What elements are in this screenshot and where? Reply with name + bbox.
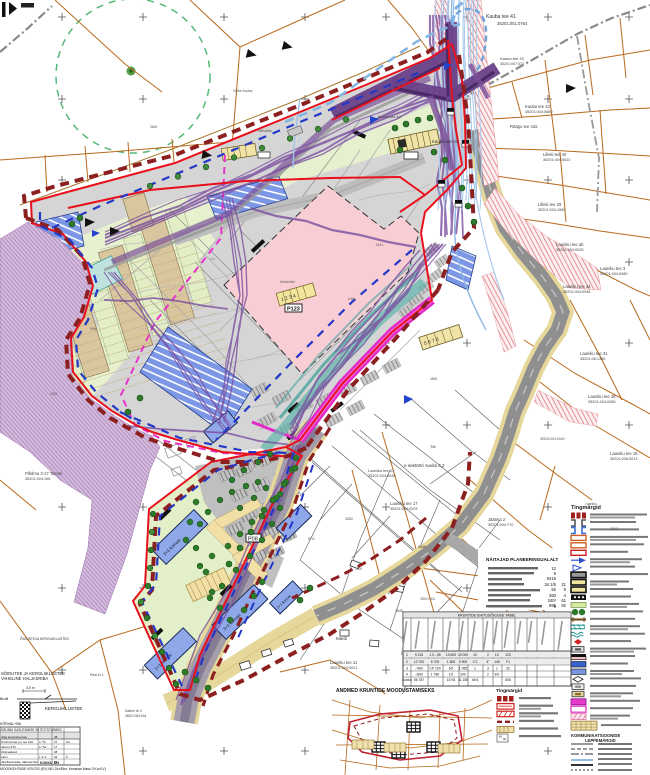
svg-text:2: 2: [487, 673, 489, 677]
svg-text:Lilleki tee 29: Lilleki tee 29: [538, 202, 562, 207]
svg-text:27: 27: [54, 740, 58, 744]
svg-text:3,5 m: 3,5 m: [26, 686, 35, 690]
svg-text:1: 1: [496, 667, 498, 671]
svg-text:Laaniku tee 15: Laaniku tee 15: [610, 451, 638, 456]
svg-text:3 2: 3 2: [473, 660, 478, 664]
svg-text:Kalevi tn 4: Kalevi tn 4: [125, 709, 142, 713]
svg-text:Põldma 3-17 Tammi: Põldma 3-17 Tammi: [25, 471, 62, 476]
svg-text:1205: 1205: [355, 567, 362, 571]
svg-text:NÄITAJAD PLANEERINGUALALT: NÄITAJAD PLANEERINGUALALT: [486, 556, 558, 562]
svg-text:Brutii: Brutii: [0, 697, 8, 701]
svg-text:4: 4: [406, 673, 408, 677]
svg-text:35201:004:0048: 35201:004:0048: [563, 290, 590, 294]
svg-text:Kokku: Kokku: [402, 678, 412, 682]
svg-text:Kauba tee 41: Kauba tee 41: [486, 14, 516, 20]
svg-text:30 000: 30 000: [458, 653, 468, 657]
svg-text:35201: 35201: [610, 527, 619, 531]
svg-text:8½: 8½: [495, 673, 500, 677]
svg-text:35201:004:0203: 35201:004:0203: [390, 507, 417, 511]
svg-text:2: 2: [406, 660, 408, 664]
svg-text:1Ó: 1Ó: [449, 672, 454, 677]
svg-text:9141: 9141: [376, 243, 383, 247]
svg-text:Laaniku tee 3: Laaniku tee 3: [600, 266, 626, 271]
svg-text:Lilleki tee 40: Lilleki tee 40: [543, 152, 567, 157]
svg-text:Kauba tee 42: Kauba tee 42: [525, 104, 551, 109]
svg-text:35201:06:1380: 35201:06:1380: [580, 357, 605, 361]
svg-text:P123: P123: [287, 307, 300, 313]
svg-text:92: 92: [561, 603, 566, 608]
svg-text:L/ Tor: L/ Tor: [39, 745, 46, 749]
svg-text:145: 145: [494, 660, 500, 664]
svg-text:3302: 3302: [345, 517, 353, 521]
svg-text:1C: 1C: [495, 653, 500, 657]
svg-text:ÕIGUSTEJA KERGLIIKLUSTES: ÕIGUSTEJA KERGLIIKLUSTES: [20, 636, 70, 641]
svg-text:32: 32: [506, 667, 510, 671]
svg-text:Põld: Põld: [90, 327, 97, 331]
svg-text:Ärija teenindusmaa: Ärija teenindusmaa: [1, 735, 27, 739]
svg-text:CP 100: CP 100: [429, 667, 440, 671]
svg-text:35201:004:0026: 35201:004:0026: [368, 474, 395, 478]
svg-text:1: 1: [474, 667, 476, 671]
svg-text:35201:004:0085: 35201:004:0085: [588, 400, 615, 404]
svg-text:Jarcus 376: Jarcus 376: [1, 745, 16, 749]
svg-text:Järeltõpsmjala, talkuserviku: Järeltõpsmjala, talkuserviku: [1, 760, 38, 764]
svg-text:35201:004:1580: 35201:004:1580: [538, 208, 565, 212]
svg-text:Laaniku tee 34: Laaniku tee 34: [563, 284, 591, 289]
svg-text:35201:004:7?0: 35201:004:7?0: [488, 523, 513, 527]
svg-text:35201:006:0013: 35201:006:0013: [610, 457, 637, 461]
svg-text:92: 92: [551, 587, 556, 592]
svg-text:Mardi: Mardi: [336, 636, 347, 641]
svg-text:Laaniku tee 21: Laaniku tee 21: [368, 468, 395, 473]
svg-text:KERGLIIKLUSTEE: KERGLIIKLUSTEE: [45, 706, 82, 711]
svg-text:35201:004: 35201:004: [420, 597, 435, 601]
svg-text:Ua: Ua: [66, 740, 70, 744]
svg-text:4 tn: 4 tn: [155, 342, 160, 346]
svg-text:Kauba tee 43: Kauba tee 43: [500, 56, 525, 61]
svg-text:9 115: 9 115: [415, 653, 423, 657]
svg-text:10: 10: [473, 653, 477, 657]
svg-text:P08: P08: [248, 537, 258, 543]
svg-text:KOKKU 124: KOKKU 124: [40, 761, 59, 765]
svg-text:1205: 1205: [50, 392, 57, 396]
svg-text:6Ó: 6Ó: [449, 666, 454, 671]
svg-text:605: 605: [505, 678, 511, 682]
svg-text:Üldmaaland: Üldmaaland: [1, 750, 17, 754]
svg-text:Laaniku tee 31: Laaniku tee 31: [580, 351, 608, 356]
svg-text:6 tee: 6 tee: [348, 297, 355, 301]
svg-text:2: 2: [487, 653, 489, 657]
svg-text:KÕRVAL+B6: KÕRVAL+B6: [0, 721, 21, 726]
svg-text:F1: F1: [506, 660, 510, 664]
svg-text:Metsistiku: Metsistiku: [280, 280, 295, 284]
svg-text:35201:004:0810: 35201:004:0810: [543, 158, 570, 162]
svg-text:35201:004:0080: 35201:004:0080: [600, 272, 627, 276]
svg-text:KRUNTIDE EHITUSÕIGUSE TABEL: KRUNTIDE EHITUSÕIGUSE TABEL: [458, 613, 517, 618]
svg-text:56 787: 56 787: [414, 678, 424, 682]
svg-text:32: 32: [54, 755, 58, 759]
svg-text:35201:004:044: 35201:004:044: [125, 714, 146, 718]
svg-text:1 0...05: 1 0...05: [429, 653, 440, 657]
svg-text:ANDMED KRUNTIDE MOODUSTAMISEKS: ANDMED KRUNTIDE MOODUSTAMISEKS: [336, 688, 435, 694]
svg-text:~960: ~960: [415, 667, 423, 671]
svg-text:1 800: 1 800: [447, 660, 456, 664]
svg-text:6 700: 6 700: [431, 660, 440, 664]
svg-text:Laaniku tee 17: Laaniku tee 17: [390, 501, 418, 506]
svg-text:Väike-Kauba: Väike-Kauba: [233, 89, 253, 93]
svg-text:35201:007:07?: 35201:007:07?: [500, 62, 524, 66]
svg-text:e sektööri suvila 4,2: e sektööri suvila 4,2: [404, 463, 445, 468]
svg-text:3: 3: [406, 667, 408, 671]
svg-text:13 600: 13 600: [446, 653, 456, 657]
svg-text:3: 3: [487, 667, 489, 671]
svg-text:35201:001:0764: 35201:001:0764: [497, 21, 528, 26]
svg-text:Lärm: Lärm: [1, 755, 8, 759]
svg-text:35201:004:0650: 35201:004:0650: [525, 110, 552, 114]
svg-text:Rea tn 1: Rea tn 1: [90, 673, 104, 677]
svg-text:9415: 9415: [547, 576, 557, 581]
svg-text:48: 48: [54, 735, 58, 739]
svg-text:3608: 3608: [150, 125, 157, 129]
svg-text:8711: 8711: [308, 537, 315, 541]
svg-text:Kauba tee 44: Kauba tee 44: [432, 139, 459, 144]
svg-text:200: 200: [460, 673, 466, 677]
svg-text:Metsistiku: Metsistiku: [258, 129, 272, 133]
svg-text:1: 1: [406, 653, 408, 657]
svg-text:1640: 1640: [395, 609, 403, 613]
svg-text:Tiik: Tiik: [430, 445, 436, 449]
svg-text:6640: 6640: [418, 545, 426, 549]
svg-text:Laaniku tee ab: Laaniku tee ab: [556, 242, 584, 247]
svg-text:L/ Tb: L/ Tb: [39, 740, 46, 744]
svg-text:35201:004:106: 35201:004:106: [25, 477, 50, 481]
svg-text:1 780: 1 780: [431, 673, 440, 677]
svg-text:KRUNDI KASUTAMISE SIHTOTSTARBE: KRUNDI KASUTAMISE SIHTOTSTARBED: [1, 728, 62, 732]
svg-text:35201:004:0025: 35201:004:0025: [556, 248, 583, 252]
svg-text:~800: ~800: [415, 673, 423, 677]
svg-text:L 1/ 2: L 1/ 2: [39, 755, 47, 759]
svg-text:Laaniku tee 11: Laaniku tee 11: [330, 660, 358, 665]
svg-text:Tingmärgid: Tingmärgid: [496, 688, 522, 694]
svg-text:Laaniku tee 28: Laaniku tee 28: [588, 394, 616, 399]
svg-text:46 6: 46 6: [472, 678, 479, 682]
svg-text:VAHELINE HALJASRIBA: VAHELINE HALJASRIBA: [1, 676, 48, 681]
svg-text:12 700: 12 700: [414, 660, 424, 664]
svg-text:4805: 4805: [430, 377, 437, 381]
svg-text:LEPPEMÄRGID: LEPPEMÄRGID: [585, 738, 616, 743]
svg-text:1 055: 1 055: [459, 667, 468, 671]
svg-text:41 155: 41 155: [458, 678, 468, 682]
svg-text:15 93: 15 93: [447, 678, 456, 682]
svg-text:MOODKEHTADE KRUTIS (EV) MÜ 24×: MOODKEHTADE KRUTIS (EV) MÜ 24×85m, Kesau…: [0, 767, 106, 771]
svg-text:Laaniku: Laaniku: [585, 502, 597, 506]
svg-text:35201:004:0021: 35201:004:0021: [330, 666, 357, 670]
svg-text:38: 38: [54, 750, 58, 754]
svg-text:9 900: 9 900: [459, 660, 468, 664]
svg-text:Jäätma 2: Jäätma 2: [488, 517, 506, 522]
svg-text:123: 123: [505, 653, 511, 657]
svg-text:7 tn: 7 tn: [210, 257, 215, 261]
svg-text:Kauba tee 4d: Kauba tee 4d: [378, 115, 401, 119]
svg-text:Räägu tee 42a: Räägu tee 42a: [510, 124, 538, 129]
svg-text:2 tn: 2 tn: [120, 299, 125, 303]
svg-text:17: 17: [54, 745, 58, 749]
svg-text:35201:004:0040: 35201:004:0040: [540, 437, 565, 441]
svg-text:Tootmismaa p.o.tee 100: Tootmismaa p.o.tee 100: [1, 740, 33, 744]
